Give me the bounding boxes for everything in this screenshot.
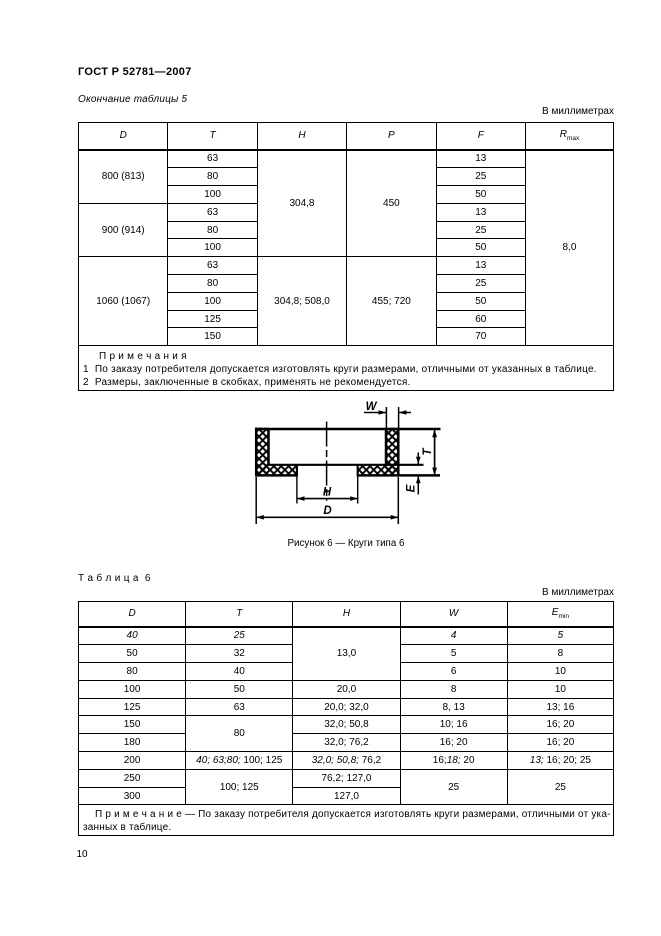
svg-text:E: E bbox=[406, 484, 418, 492]
svg-text:W: W bbox=[366, 401, 378, 413]
svg-text:H: H bbox=[323, 487, 332, 499]
svg-text:T: T bbox=[422, 448, 434, 456]
svg-text:D: D bbox=[323, 505, 331, 517]
